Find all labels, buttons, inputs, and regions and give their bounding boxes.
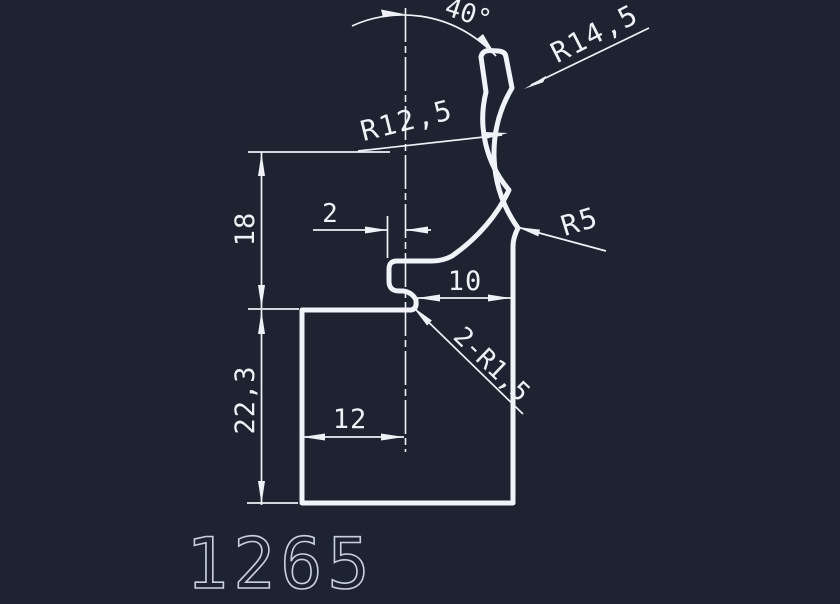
height-lower-label: 22,3: [230, 365, 261, 434]
dim18-arrow-bottom: [258, 285, 265, 308]
dim2-arrow-right: [406, 227, 429, 234]
height-upper-label: 18: [230, 212, 261, 247]
width-inner-label: 12: [333, 404, 368, 435]
dim10-arrow-right: [488, 295, 511, 302]
radius-inner-label: R12,5: [357, 93, 456, 148]
dim2-arrow-left: [365, 227, 388, 234]
wall-thickness-label: 2: [322, 199, 338, 229]
dim223-arrow-bottom: [258, 481, 265, 504]
opening-width-label: 10: [448, 266, 483, 297]
part-number: 1265: [186, 523, 375, 600]
lip-fillets-label: 2-R1,5: [447, 321, 535, 408]
profile-inner-path: [389, 57, 509, 300]
dim10-arrow-left: [417, 295, 440, 302]
profile-drawing: 40° R14,5 R12,5 R5 2 18 10 12 22,3 2-R1,…: [0, 0, 840, 600]
cad-drawing-canvas: 40° R14,5 R12,5 R5 2 18 10 12 22,3 2-R1,…: [0, 0, 840, 600]
radius-corner-label: R5: [557, 200, 603, 243]
angle-arrow-left: [381, 10, 404, 18]
dim223-arrow-top: [258, 311, 265, 334]
radius-outer-label: R14,5: [545, 0, 644, 70]
lip-fillet-arrow: [413, 307, 432, 326]
dim18-arrow-top: [258, 153, 265, 176]
dim12-arrow-right: [381, 434, 404, 441]
angle-dim-label: 40°: [441, 0, 495, 36]
r5-arrow: [517, 227, 540, 236]
dim12-arrow-left: [302, 434, 325, 441]
